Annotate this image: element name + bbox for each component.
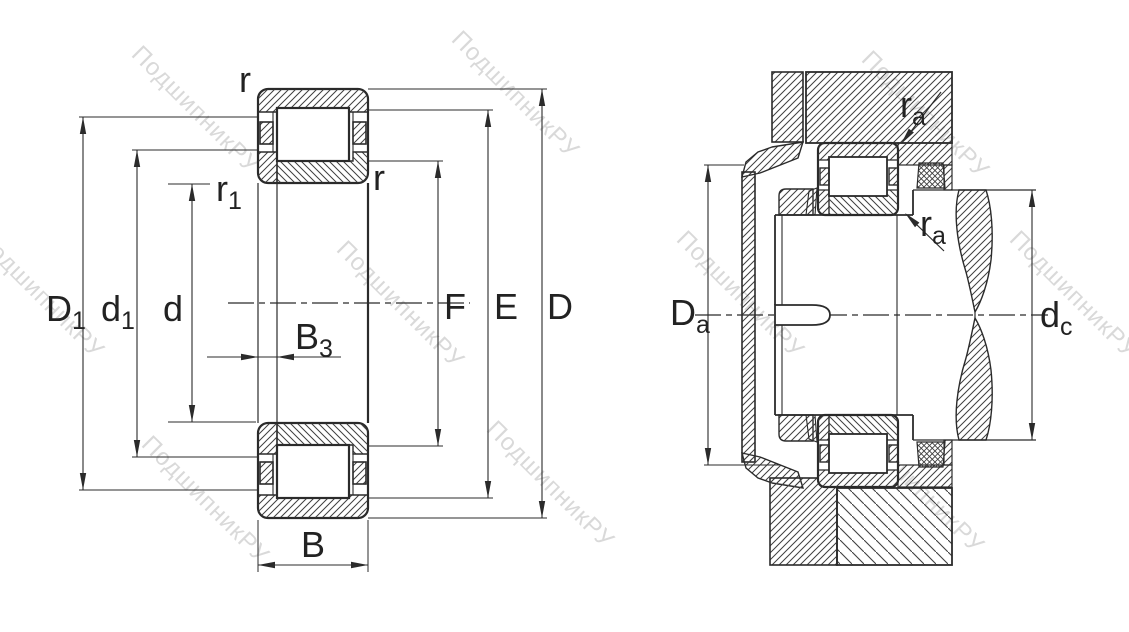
dim-label-Da: Da [670, 292, 710, 339]
watermark-text: ПодшипникРУ [446, 26, 584, 164]
seal-upper [917, 163, 945, 188]
cover-wall [742, 172, 755, 462]
dim-label-B3: B3 [295, 316, 333, 363]
cover-lower-flange [770, 478, 837, 565]
dim-label-r1: r1 [216, 168, 242, 215]
bearing-lower-section [258, 423, 368, 518]
dim-label-r-top: r [239, 59, 251, 100]
shaft-center-bore [775, 305, 830, 325]
cage-section [353, 462, 366, 484]
shaft-break-section-lower [956, 318, 992, 440]
callout-ra-lower: ra [905, 203, 946, 251]
roller [829, 434, 887, 473]
roller [829, 157, 887, 196]
thrust-collar-section [818, 190, 829, 215]
cage-section [889, 445, 898, 462]
watermark-text: ПодшипникРУ [136, 431, 274, 569]
dimension-B: B [258, 520, 368, 572]
cover-upper-flange [772, 72, 803, 142]
dim-label-d: d [163, 288, 183, 329]
dim-label-r-inner: r [373, 157, 385, 198]
cage-section [820, 168, 829, 185]
bearing-upper-section [818, 143, 898, 215]
bearing-technical-drawing: ПодшипникРУ ПодшипникРУ ПодшипникРУ Подш… [0, 0, 1129, 632]
cage-section [260, 462, 273, 484]
bearing-upper-section [258, 89, 368, 183]
dim-label-D1: D1 [46, 288, 86, 335]
seal-lower [917, 442, 945, 467]
housing-lower-shoulder [898, 465, 952, 487]
cage-section [260, 122, 273, 144]
right-diagram-mounting: Da dc ra ra [670, 72, 1073, 565]
roller [277, 108, 349, 161]
cage-section [353, 122, 366, 144]
left-diagram-bearing-section: D1 d1 d F [46, 59, 573, 572]
thrust-collar-section [258, 152, 277, 183]
dim-label-D: D [547, 286, 573, 327]
cage-section [889, 168, 898, 185]
thrust-collar-section [818, 415, 829, 440]
roller [277, 445, 349, 498]
watermark-text: ПодшипникРУ [481, 416, 619, 554]
dimension-B3: B3 [207, 316, 341, 363]
dim-label-B: B [301, 524, 325, 565]
dim-label-ra-lower: ra [920, 203, 946, 250]
shaft-break-section-upper [956, 190, 992, 312]
dim-label-E: E [494, 286, 518, 327]
drawing-canvas: ПодшипникРУ ПодшипникРУ ПодшипникРУ Подш… [0, 0, 1129, 632]
dim-label-F: F [444, 286, 466, 327]
housing-upper-shoulder [898, 143, 952, 165]
dim-label-d1: d1 [101, 288, 135, 335]
housing-base-block [837, 488, 952, 565]
housing-upper-block [806, 72, 952, 143]
cage-section [820, 445, 829, 462]
watermark-text: ПодшипникРУ [1004, 226, 1129, 364]
thrust-collar-section [258, 423, 277, 454]
bearing-lower-section [818, 415, 898, 487]
